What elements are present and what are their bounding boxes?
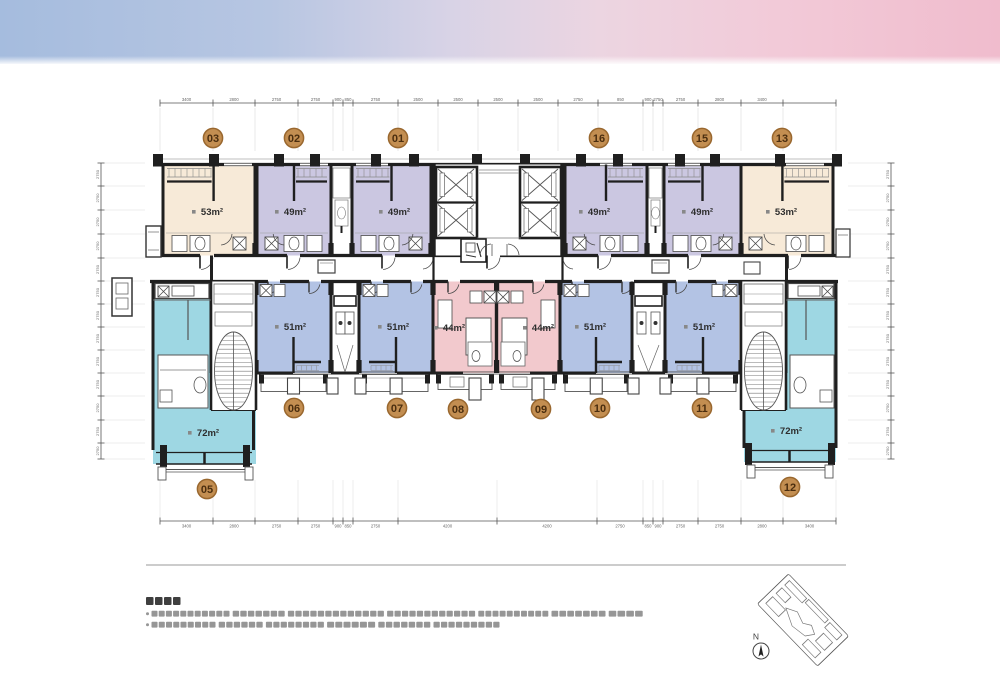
svg-text:2800: 2800 xyxy=(229,97,239,102)
svg-text:2750: 2750 xyxy=(95,169,100,179)
svg-text:2750: 2750 xyxy=(95,333,100,343)
svg-text:2800: 2800 xyxy=(757,524,767,529)
svg-text:51m²: 51m² xyxy=(387,322,409,333)
svg-text:2750: 2750 xyxy=(885,426,890,436)
svg-text:2750: 2750 xyxy=(272,524,282,529)
svg-text:900: 900 xyxy=(655,524,663,529)
svg-text:2750: 2750 xyxy=(615,524,625,529)
svg-text:2750: 2750 xyxy=(885,333,890,343)
svg-text:4200: 4200 xyxy=(542,524,552,529)
svg-text:49m²: 49m² xyxy=(588,207,610,218)
svg-text:2750: 2750 xyxy=(95,193,100,203)
svg-text:2750: 2750 xyxy=(272,97,282,102)
svg-text:2800: 2800 xyxy=(229,524,239,529)
svg-text:2750: 2750 xyxy=(371,524,381,529)
svg-text:2750: 2750 xyxy=(885,379,890,389)
svg-text:2750: 2750 xyxy=(311,97,321,102)
svg-text:2750: 2750 xyxy=(885,287,890,297)
svg-text:2750: 2750 xyxy=(95,446,100,456)
svg-text:2500: 2500 xyxy=(493,97,503,102)
svg-text:2750: 2750 xyxy=(95,426,100,436)
svg-text:2750: 2750 xyxy=(715,524,725,529)
svg-text:53m²: 53m² xyxy=(775,207,797,218)
svg-text:2750: 2750 xyxy=(95,287,100,297)
svg-text:01: 01 xyxy=(392,133,404,145)
svg-text:10: 10 xyxy=(594,403,606,415)
svg-text:2750: 2750 xyxy=(371,97,381,102)
svg-text:02: 02 xyxy=(288,133,300,145)
svg-text:2750: 2750 xyxy=(95,310,100,320)
svg-text:2750: 2750 xyxy=(311,524,321,529)
svg-text:08: 08 xyxy=(452,404,464,416)
svg-text:15: 15 xyxy=(696,133,708,145)
svg-text:N: N xyxy=(753,632,759,642)
svg-text:2750: 2750 xyxy=(573,97,583,102)
svg-text:11: 11 xyxy=(696,403,708,415)
svg-text:49m²: 49m² xyxy=(388,207,410,218)
svg-text:12: 12 xyxy=(784,482,796,494)
svg-text:2750: 2750 xyxy=(676,97,686,102)
svg-text:2750: 2750 xyxy=(95,264,100,274)
svg-text:2750: 2750 xyxy=(676,524,686,529)
svg-text:53m²: 53m² xyxy=(201,207,223,218)
svg-text:16: 16 xyxy=(593,133,605,145)
svg-text:2750: 2750 xyxy=(95,379,100,389)
svg-text:2500: 2500 xyxy=(453,97,463,102)
svg-text:06: 06 xyxy=(288,403,300,415)
svg-text:72m²: 72m² xyxy=(780,426,802,437)
svg-text:900: 900 xyxy=(335,97,343,102)
svg-text:2750: 2750 xyxy=(885,264,890,274)
svg-text:3400: 3400 xyxy=(182,97,192,102)
svg-text:850: 850 xyxy=(345,97,353,102)
svg-text:51m²: 51m² xyxy=(584,322,606,333)
svg-text:2750: 2750 xyxy=(885,193,890,203)
svg-text:2750: 2750 xyxy=(95,241,100,251)
svg-text:07: 07 xyxy=(391,403,403,415)
svg-text:850: 850 xyxy=(645,524,653,529)
svg-text:51m²: 51m² xyxy=(693,322,715,333)
svg-text:44m²: 44m² xyxy=(443,323,465,334)
svg-text:44m²: 44m² xyxy=(532,323,554,334)
svg-text:3400: 3400 xyxy=(182,524,192,529)
svg-text:2750: 2750 xyxy=(885,403,890,413)
svg-text:2750: 2750 xyxy=(95,403,100,413)
svg-text:2750: 2750 xyxy=(885,356,890,366)
svg-text:850: 850 xyxy=(345,524,353,529)
svg-text:900: 900 xyxy=(335,524,343,529)
svg-text:3400: 3400 xyxy=(757,97,767,102)
svg-text:2750: 2750 xyxy=(885,310,890,320)
svg-text:13: 13 xyxy=(776,133,788,145)
svg-text:2800: 2800 xyxy=(715,97,725,102)
svg-text:2500: 2500 xyxy=(413,97,423,102)
svg-text:2750: 2750 xyxy=(95,217,100,227)
svg-text:09: 09 xyxy=(535,404,547,416)
svg-text:05: 05 xyxy=(201,484,213,496)
svg-text:2500: 2500 xyxy=(533,97,543,102)
svg-text:3400: 3400 xyxy=(805,524,815,529)
svg-text:4200: 4200 xyxy=(443,524,453,529)
svg-text:2750: 2750 xyxy=(885,446,890,456)
svg-text:2750: 2750 xyxy=(885,241,890,251)
svg-text:2750: 2750 xyxy=(885,217,890,227)
svg-text:49m²: 49m² xyxy=(284,207,306,218)
svg-text:900: 900 xyxy=(645,97,653,102)
svg-text:2750: 2750 xyxy=(885,169,890,179)
svg-text:03: 03 xyxy=(207,133,219,145)
svg-text:850: 850 xyxy=(617,97,625,102)
svg-text:49m²: 49m² xyxy=(691,207,713,218)
svg-text:72m²: 72m² xyxy=(197,428,219,439)
svg-text:2750: 2750 xyxy=(653,97,663,102)
svg-text:2750: 2750 xyxy=(95,356,100,366)
svg-text:51m²: 51m² xyxy=(284,322,306,333)
